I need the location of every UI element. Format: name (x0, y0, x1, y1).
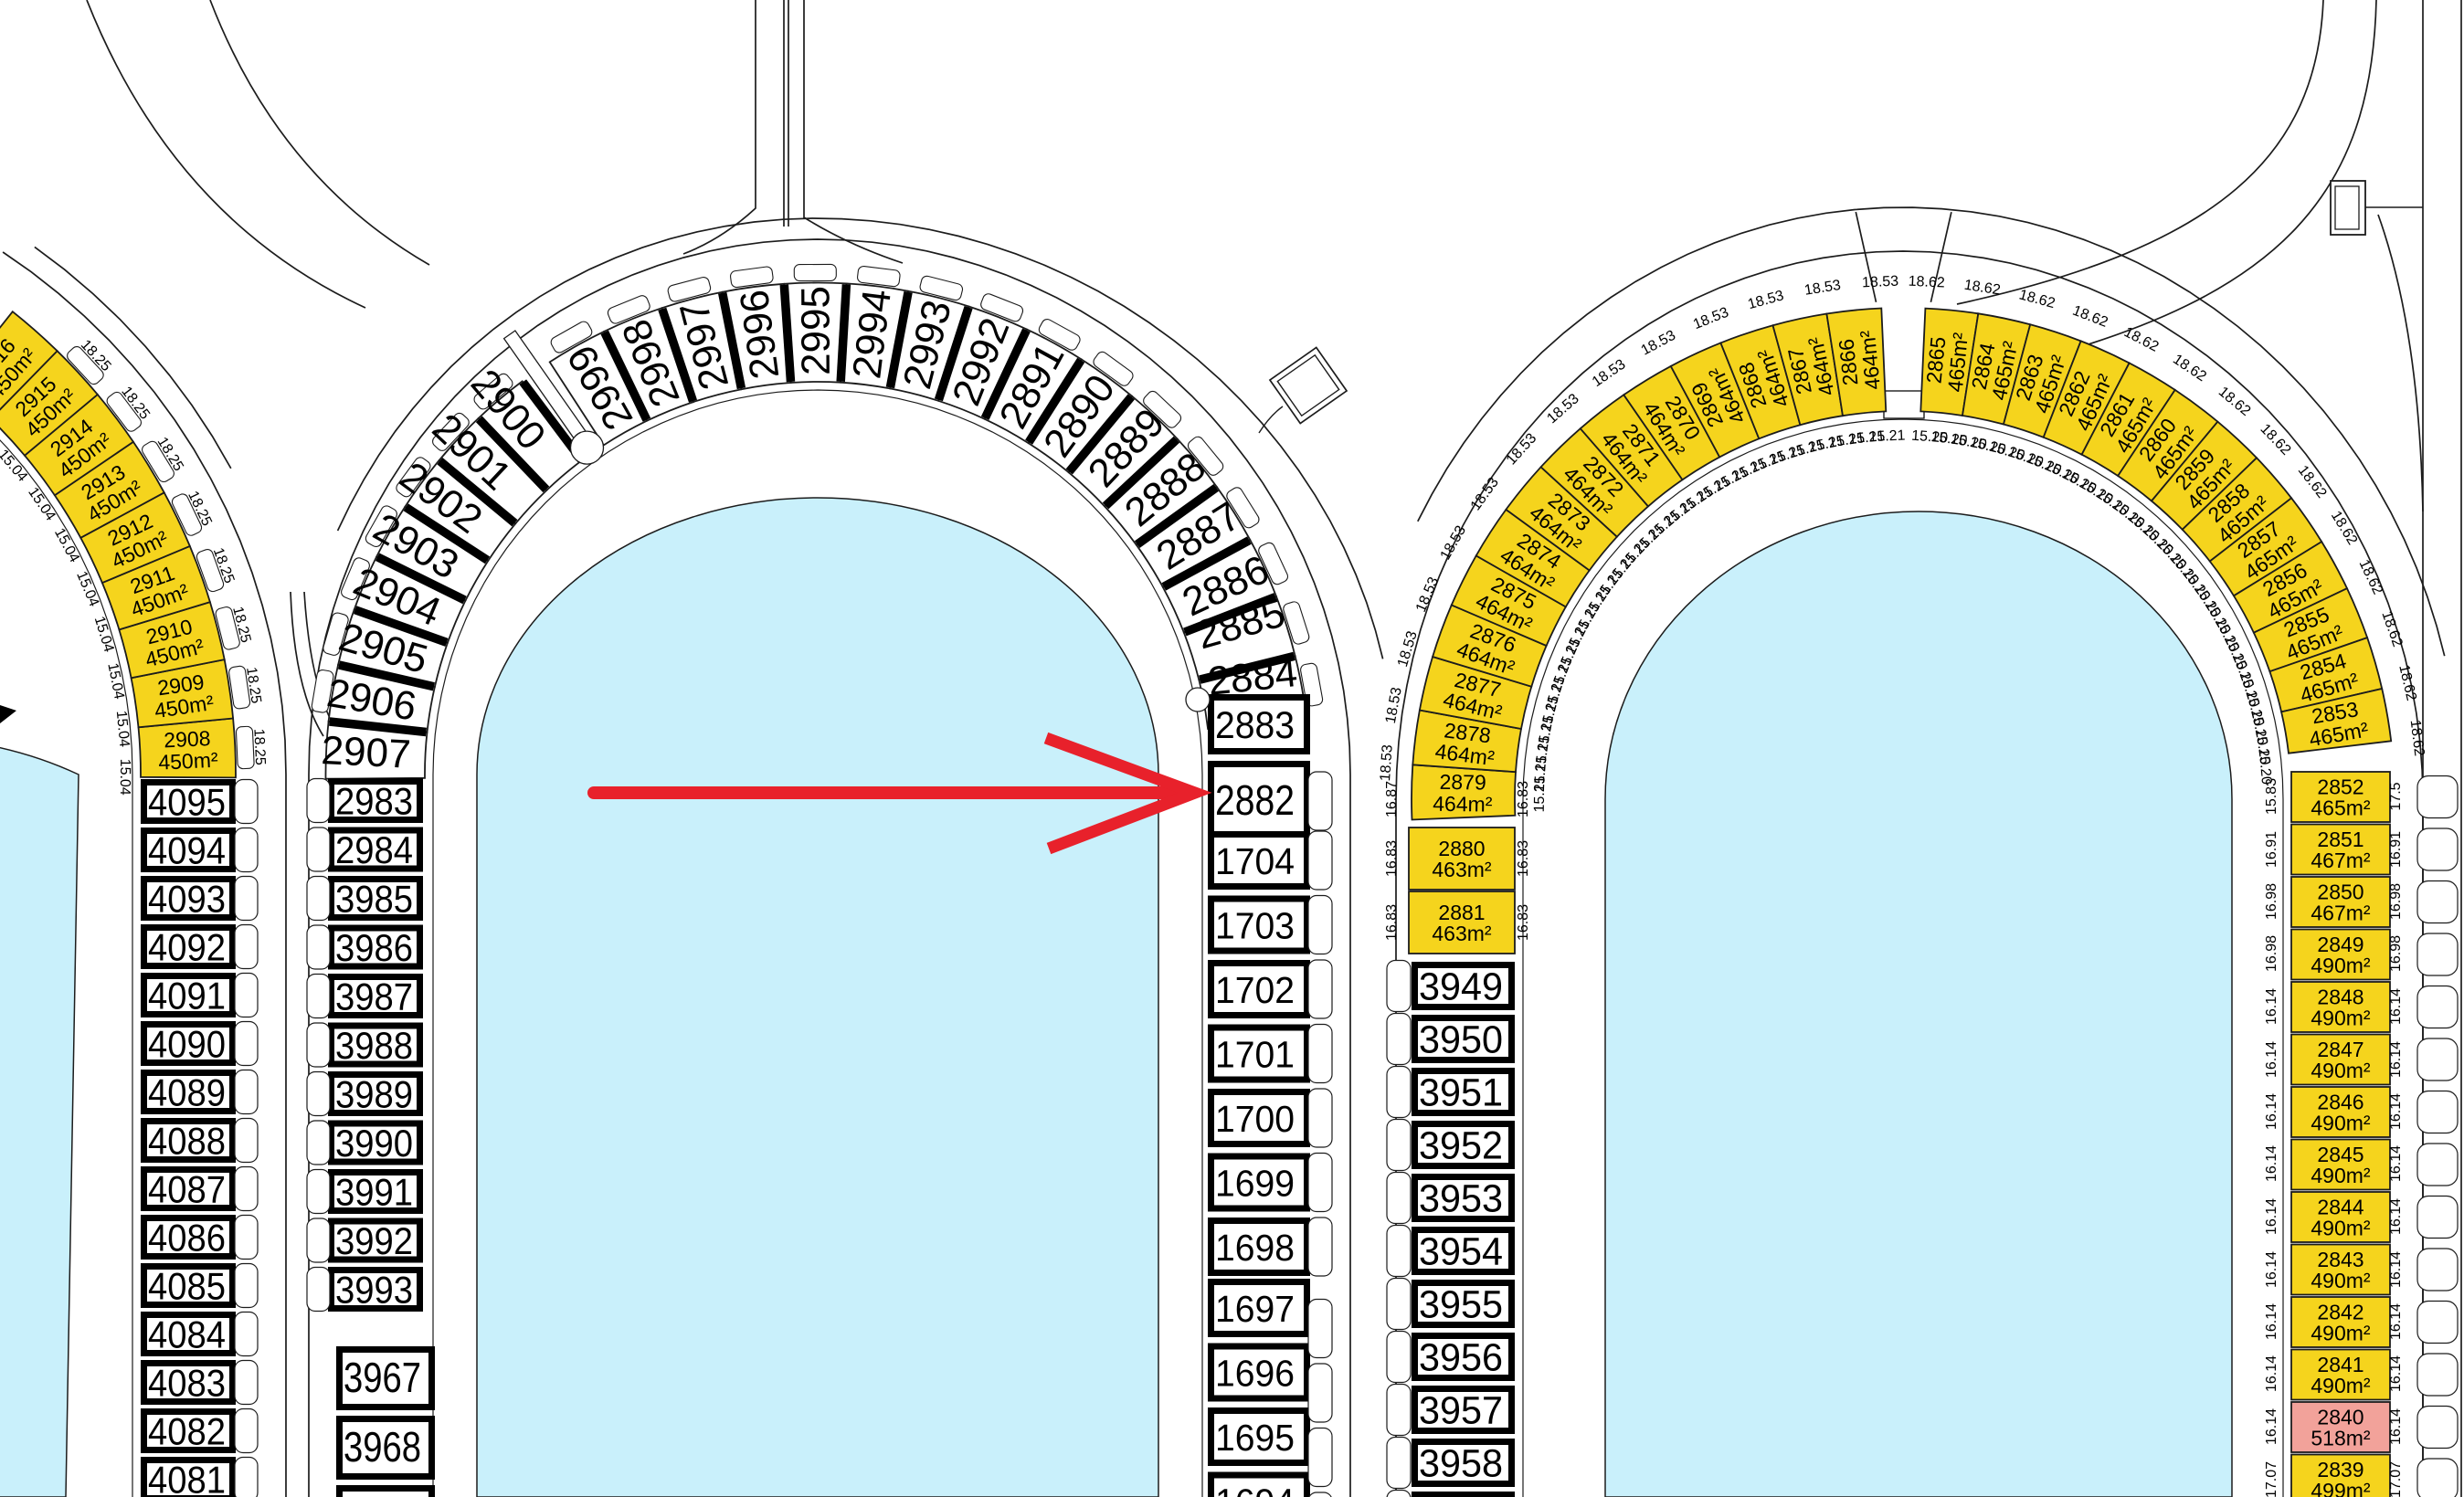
svg-text:1699: 1699 (1215, 1163, 1295, 1205)
svg-text:16.98: 16.98 (2264, 883, 2279, 920)
svg-text:3992: 3992 (335, 1219, 413, 1262)
svg-text:16.14: 16.14 (2388, 1145, 2404, 1182)
svg-text:16.83: 16.83 (1384, 904, 1400, 941)
svg-text:4081: 4081 (148, 1459, 226, 1497)
svg-text:3953: 3953 (1419, 1177, 1503, 1221)
svg-text:490m²: 490m² (2311, 1322, 2371, 1345)
svg-text:4086: 4086 (148, 1217, 226, 1260)
svg-text:16.98: 16.98 (2388, 883, 2404, 920)
svg-text:16.14: 16.14 (2388, 1041, 2404, 1078)
svg-text:463m²: 463m² (1432, 922, 1492, 945)
svg-text:16.14: 16.14 (2264, 1145, 2279, 1182)
svg-text:490m²: 490m² (2311, 954, 2371, 977)
svg-text:16.14: 16.14 (2388, 1355, 2404, 1392)
svg-text:4082: 4082 (148, 1410, 226, 1453)
svg-text:2907: 2907 (320, 728, 411, 777)
svg-text:3956: 3956 (1419, 1336, 1503, 1380)
svg-text:1694: 1694 (1215, 1481, 1295, 1497)
svg-text:3993: 3993 (335, 1269, 413, 1312)
svg-text:18.53: 18.53 (1378, 744, 1396, 782)
svg-text:2882: 2882 (1215, 776, 1295, 824)
svg-text:1703: 1703 (1215, 905, 1295, 947)
svg-text:1704: 1704 (1215, 840, 1295, 882)
svg-text:450m²: 450m² (158, 748, 219, 775)
svg-text:17.07: 17.07 (2388, 1461, 2404, 1497)
svg-text:16.98: 16.98 (2264, 935, 2279, 972)
svg-text:464m²: 464m² (1433, 792, 1493, 817)
svg-text:16.14: 16.14 (2264, 1303, 2279, 1340)
svg-text:16.14: 16.14 (2388, 1408, 2404, 1445)
svg-text:2983: 2983 (335, 780, 413, 823)
svg-text:3950: 3950 (1419, 1018, 1503, 1062)
svg-text:16.83: 16.83 (1516, 781, 1531, 817)
svg-text:16.14: 16.14 (2264, 988, 2279, 1025)
svg-text:17.5: 17.5 (2388, 782, 2404, 810)
svg-text:4083: 4083 (148, 1362, 226, 1405)
svg-text:1696: 1696 (1215, 1353, 1295, 1395)
svg-text:4094: 4094 (148, 829, 226, 872)
svg-text:16.14: 16.14 (2264, 1198, 2279, 1235)
svg-text:490m²: 490m² (2311, 1059, 2371, 1082)
svg-text:2883: 2883 (1215, 703, 1295, 746)
svg-text:4089: 4089 (148, 1071, 226, 1114)
svg-text:3951: 3951 (1419, 1071, 1503, 1115)
svg-text:4092: 4092 (148, 926, 226, 969)
svg-text:16.98: 16.98 (2388, 935, 2404, 972)
svg-text:4085: 4085 (148, 1265, 226, 1308)
svg-text:1697: 1697 (1215, 1288, 1295, 1330)
svg-text:490m²: 490m² (2311, 1112, 2371, 1135)
svg-text:1700: 1700 (1215, 1098, 1295, 1140)
svg-text:465m²: 465m² (2311, 796, 2371, 820)
svg-text:490m²: 490m² (2311, 1269, 2371, 1292)
svg-text:1695: 1695 (1215, 1417, 1295, 1459)
svg-text:3969: 3969 (344, 1492, 421, 1497)
svg-text:4088: 4088 (148, 1120, 226, 1163)
svg-text:463m²: 463m² (1432, 858, 1492, 881)
svg-text:16.91: 16.91 (2264, 831, 2279, 868)
svg-text:16.14: 16.14 (2388, 1303, 2404, 1340)
svg-text:15.83: 15.83 (2264, 778, 2279, 815)
svg-text:16.83: 16.83 (1384, 840, 1400, 877)
svg-text:15.04: 15.04 (117, 759, 132, 796)
svg-text:3987: 3987 (335, 975, 413, 1018)
svg-text:2879: 2879 (1439, 770, 1486, 795)
svg-text:16.83: 16.83 (1516, 904, 1531, 941)
svg-text:16.87: 16.87 (1384, 781, 1400, 817)
svg-text:15.21: 15.21 (1868, 428, 1906, 446)
svg-text:16.14: 16.14 (2264, 1041, 2279, 1078)
svg-text:3986: 3986 (335, 926, 413, 969)
svg-text:4093: 4093 (148, 878, 226, 921)
svg-text:518m²: 518m² (2311, 1427, 2371, 1450)
svg-text:490m²: 490m² (2311, 1217, 2371, 1240)
svg-text:18.62: 18.62 (1908, 274, 1945, 291)
svg-text:3968: 3968 (344, 1423, 421, 1471)
svg-text:2984: 2984 (335, 828, 413, 871)
svg-text:499m²: 499m² (2311, 1479, 2371, 1497)
svg-text:490m²: 490m² (2311, 1374, 2371, 1397)
svg-text:16.14: 16.14 (2388, 1251, 2404, 1288)
svg-text:3949: 3949 (1419, 965, 1503, 1009)
svg-text:3955: 3955 (1419, 1283, 1503, 1327)
svg-text:16.14: 16.14 (2264, 1408, 2279, 1445)
svg-text:1698: 1698 (1215, 1227, 1295, 1269)
svg-text:467m²: 467m² (2311, 901, 2371, 925)
svg-text:16.14: 16.14 (2264, 1251, 2279, 1288)
svg-text:4084: 4084 (148, 1313, 226, 1356)
svg-text:490m²: 490m² (2311, 1164, 2371, 1187)
svg-text:16.14: 16.14 (2264, 1355, 2279, 1392)
svg-text:3991: 3991 (335, 1171, 413, 1214)
svg-text:1701: 1701 (1215, 1034, 1295, 1076)
svg-text:4095: 4095 (148, 781, 226, 824)
svg-text:3985: 3985 (335, 878, 413, 921)
svg-text:16.14: 16.14 (2264, 1093, 2279, 1130)
svg-text:16.14: 16.14 (2388, 1093, 2404, 1130)
svg-text:3989: 3989 (335, 1073, 413, 1116)
svg-text:467m²: 467m² (2311, 849, 2371, 872)
svg-text:16.91: 16.91 (2388, 831, 2404, 868)
svg-text:4091: 4091 (148, 975, 226, 1017)
svg-text:3988: 3988 (335, 1024, 413, 1067)
svg-text:16.14: 16.14 (2388, 1198, 2404, 1235)
svg-text:4087: 4087 (148, 1168, 226, 1211)
svg-text:16.83: 16.83 (1516, 840, 1531, 877)
svg-text:2995: 2995 (793, 286, 839, 375)
svg-text:17.07: 17.07 (2264, 1461, 2279, 1497)
svg-text:3990: 3990 (335, 1122, 413, 1165)
svg-text:3957: 3957 (1419, 1389, 1503, 1433)
svg-text:1702: 1702 (1215, 969, 1295, 1011)
svg-text:490m²: 490m² (2311, 1007, 2371, 1030)
svg-text:18.53: 18.53 (1862, 274, 1899, 291)
svg-text:3958: 3958 (1419, 1442, 1503, 1486)
svg-text:3967: 3967 (344, 1354, 421, 1401)
svg-text:16.14: 16.14 (2388, 988, 2404, 1025)
svg-text:3952: 3952 (1419, 1124, 1503, 1168)
svg-text:4090: 4090 (148, 1023, 226, 1066)
svg-text:3954: 3954 (1419, 1230, 1503, 1274)
